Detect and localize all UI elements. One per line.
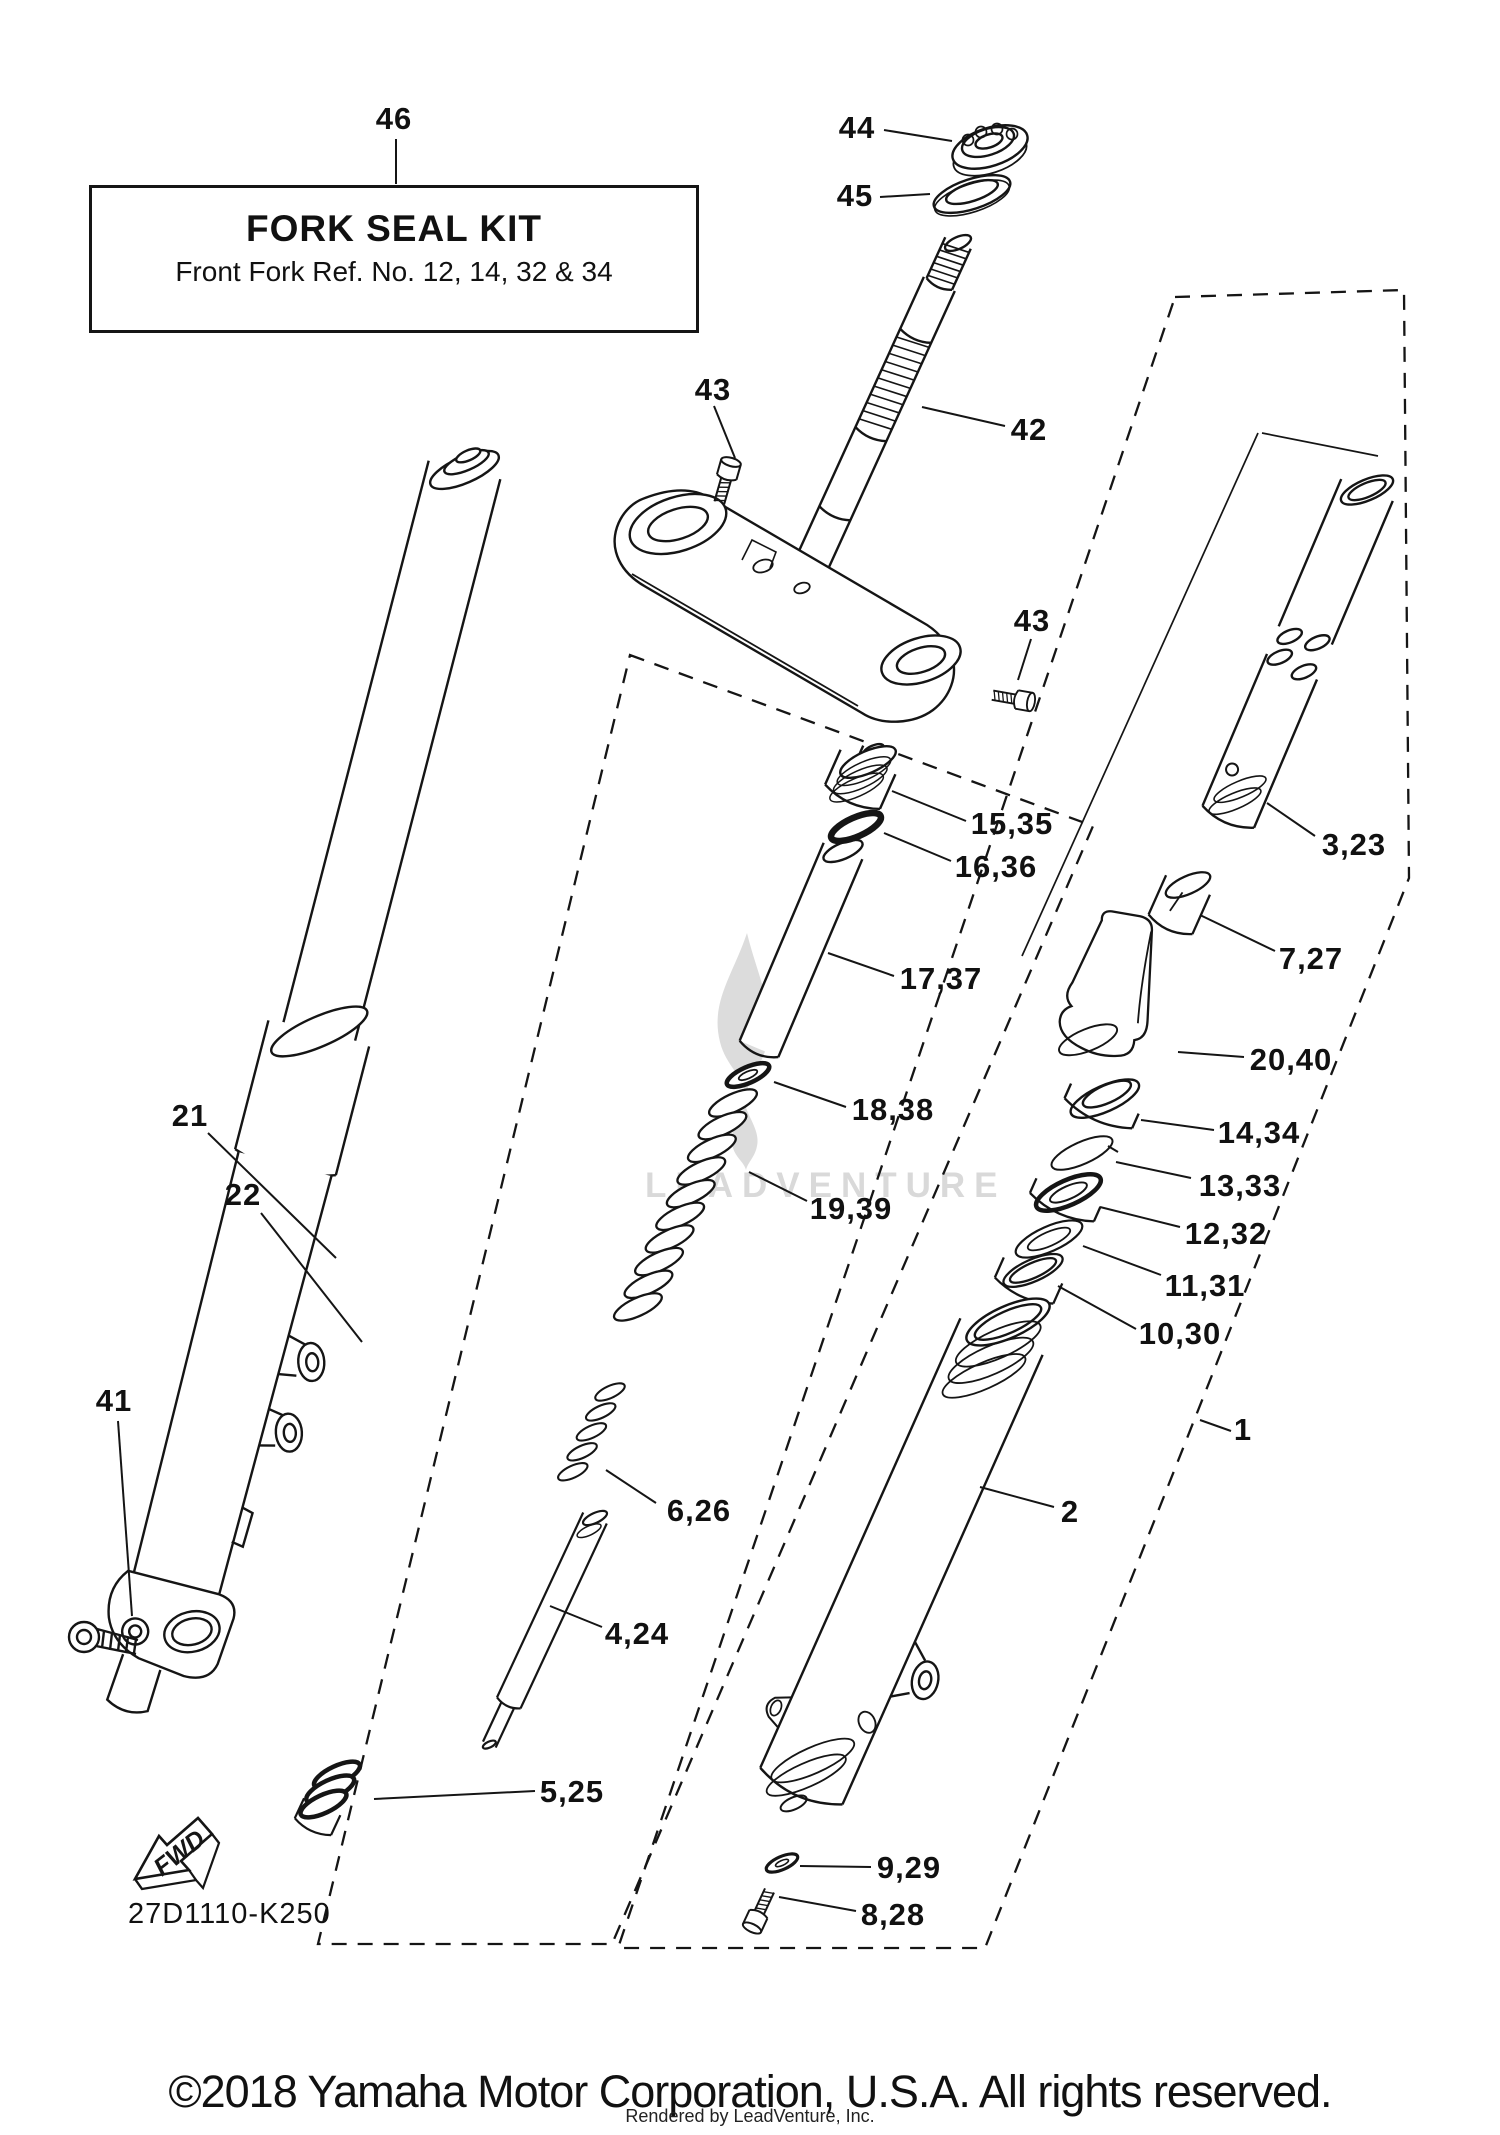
- callout-16-36-7[interactable]: 16,36: [955, 849, 1038, 885]
- leader-45-2: [880, 194, 930, 197]
- callout-4-24-24[interactable]: 4,24: [605, 1616, 669, 1652]
- bushing-7-27-art: [1146, 853, 1219, 939]
- callout-45-2[interactable]: 45: [837, 178, 873, 214]
- callout-46-0[interactable]: 46: [376, 101, 412, 137]
- fwd-arrow: FWD: [135, 1818, 219, 1889]
- callout-41-28[interactable]: 41: [96, 1383, 132, 1419]
- callout-5-25-25[interactable]: 5,25: [540, 1774, 604, 1810]
- callout-20-40-13[interactable]: 20,40: [1250, 1042, 1333, 1078]
- leader-2-20: [980, 1487, 1054, 1507]
- leader-9-29-21: [800, 1866, 871, 1867]
- callout-1-19[interactable]: 1: [1234, 1412, 1252, 1448]
- callout-42-3[interactable]: 42: [1011, 412, 1047, 448]
- callout-43-5[interactable]: 43: [1014, 603, 1050, 639]
- leader-17-37-8: [828, 953, 894, 976]
- renderer-credit: Rendered by LeadVenture, Inc.: [0, 2106, 1500, 2127]
- leader-1-19: [1200, 1420, 1231, 1431]
- callout-2-20[interactable]: 2: [1061, 1494, 1079, 1530]
- leader-43-4: [714, 406, 735, 458]
- callout-14-34-14[interactable]: 14,34: [1218, 1115, 1301, 1151]
- callout-21-26[interactable]: 21: [172, 1098, 208, 1134]
- spring-seat-20-40-art: [1043, 901, 1185, 1085]
- fork-seal-kit-box: FORK SEAL KIT Front Fork Ref. No. 12, 14…: [89, 185, 699, 333]
- leader-12-32-16: [1100, 1207, 1180, 1227]
- leader-8-28-22: [779, 1897, 856, 1911]
- leader-10-30-18: [1058, 1286, 1136, 1329]
- kit-subtitle: Front Fork Ref. No. 12, 14, 32 & 34: [92, 256, 696, 288]
- leader-18-38-9: [774, 1082, 846, 1107]
- callout-13-33-15[interactable]: 13,33: [1199, 1168, 1282, 1204]
- leader-14-34-14: [1141, 1120, 1214, 1130]
- leader-3-23-11: [1267, 803, 1315, 836]
- inner-tube-3-23-art: [1199, 454, 1404, 836]
- parts-diagram-page: LEADVENTURE: [0, 0, 1500, 2135]
- fork-cap-15-35-art: [818, 723, 907, 825]
- callout-19-39-10[interactable]: 19,39: [810, 1191, 893, 1227]
- callout-17-37-8[interactable]: 17,37: [900, 961, 983, 997]
- callout-3-23-11[interactable]: 3,23: [1322, 827, 1386, 863]
- callout-12-32-16[interactable]: 12,32: [1185, 1216, 1268, 1252]
- left-fork-assembly-art: [69, 423, 563, 1739]
- leader-11-31-17: [1083, 1246, 1161, 1275]
- callout-15-35-6[interactable]: 15,35: [971, 806, 1054, 842]
- callout-43-4[interactable]: 43: [695, 372, 731, 408]
- outer-tube-2-art: [729, 1256, 1105, 1852]
- callout-7-27-12[interactable]: 7,27: [1279, 941, 1343, 977]
- callout-44-1[interactable]: 44: [839, 110, 875, 146]
- leader-43-5: [1018, 639, 1031, 680]
- callout-18-38-9[interactable]: 18,38: [852, 1092, 935, 1128]
- spacer-17-37-art: [738, 824, 871, 1062]
- leader-20-40-13: [1178, 1052, 1244, 1057]
- leader-6-26-23: [606, 1470, 656, 1503]
- leader-42-3: [922, 407, 1005, 426]
- bolt-8-28-art: [741, 1886, 778, 1936]
- leader-44-1: [884, 130, 952, 141]
- oil-lock-5-25-art: [289, 1742, 369, 1841]
- leader-5-25-25: [374, 1791, 535, 1799]
- leader-7-27-12: [1200, 915, 1275, 951]
- callout-9-29-21[interactable]: 9,29: [877, 1850, 941, 1886]
- lower-bracket-art: [615, 483, 967, 722]
- clip-13-33-art: [1047, 1130, 1118, 1177]
- callout-11-31-17[interactable]: 11,31: [1165, 1268, 1246, 1304]
- leader-16-36-7: [884, 833, 951, 861]
- o-ring-16-36-art: [824, 804, 889, 850]
- leader-13-33-15: [1116, 1162, 1191, 1178]
- retainer-14-34-art: [1056, 1050, 1153, 1146]
- damper-rod-4-24-art: [474, 1501, 612, 1757]
- callout-8-28-22[interactable]: 8,28: [861, 1897, 925, 1933]
- gasket-9-29-art: [764, 1850, 800, 1876]
- bearing-44-art: [947, 117, 1033, 184]
- leader-15-35-6: [892, 791, 966, 821]
- callout-6-26-23[interactable]: 6,26: [667, 1493, 731, 1529]
- callout-22-27[interactable]: 22: [225, 1177, 261, 1213]
- drawing-code: 27D1110-K250: [128, 1898, 331, 1931]
- rebound-spring-6-26-art: [553, 1371, 631, 1493]
- callout-10-30-18[interactable]: 10,30: [1139, 1316, 1222, 1352]
- kit-title: FORK SEAL KIT: [92, 208, 696, 250]
- bolt-43-right-art: [991, 686, 1037, 712]
- bolt-43-left-art: [710, 455, 742, 505]
